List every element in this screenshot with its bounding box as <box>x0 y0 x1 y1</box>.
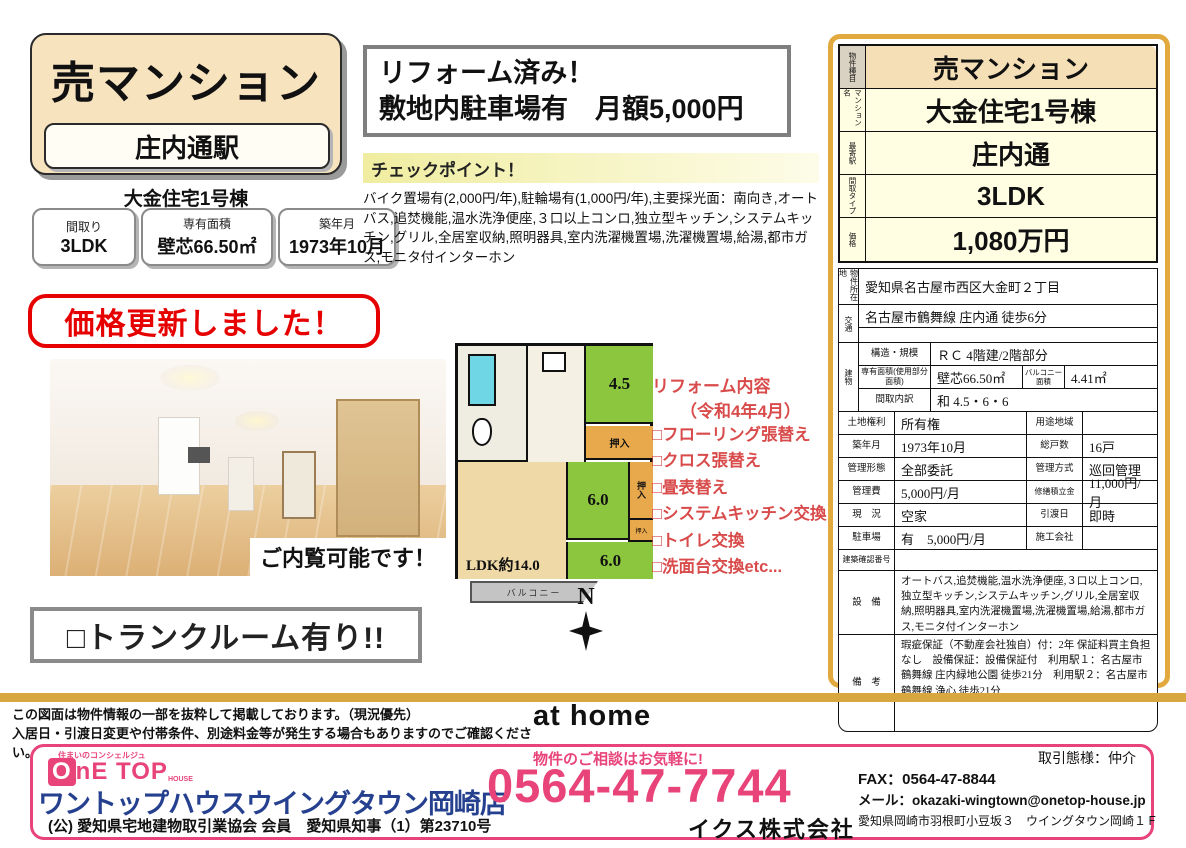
highlight-box: リフォーム済み！ 敷地内駐車場有 月額5,000円 <box>363 45 791 137</box>
property-type-title: 売マンション <box>32 47 340 111</box>
value-balcony-area: 4.41㎡ <box>1065 366 1157 388</box>
property-type-box: 売マンション 庄内通駅 <box>30 33 342 175</box>
label-repair-fund: 修繕積立金 <box>1027 481 1083 503</box>
value-management-form: 全部委託 <box>895 458 1027 480</box>
ldk-label: LDK約14.0 <box>466 554 540 575</box>
label-building: 建物 <box>839 343 859 411</box>
agency-license: (公) 愛知県宅地建物取引業協会 会員 愛知県知事（1）第23710号 <box>48 815 491 836</box>
label-handover: 引渡日 <box>1027 504 1083 526</box>
label-management-method: 管理方式 <box>1027 458 1083 480</box>
floorplan-room-4-5: 4.5 <box>586 346 653 424</box>
value-constructor <box>1083 527 1157 549</box>
room-6b-label: 6.0 <box>600 551 621 571</box>
flyer-page: 売マンション 庄内通駅 大金住宅1号棟 間取り 3LDK 専有面積 壁芯66.5… <box>0 0 1186 848</box>
photo-ceiling-light <box>160 365 220 391</box>
building-name: 大金住宅1号棟 <box>30 184 342 211</box>
summary-row-name: マンション名 大金住宅1号棟 <box>840 89 1156 132</box>
value-exclusive-area: 壁芯66.50㎡ <box>931 366 1023 388</box>
reform-list: リフォーム内容 （令和4年4月） □フローリング張替え □クロス張替え □畳表替… <box>652 372 832 580</box>
value-total-units: 16戸 <box>1083 435 1157 457</box>
photo-caption: ご内覧可能です！ <box>250 538 446 576</box>
summary-label: 価格 <box>840 218 866 261</box>
photo-ceiling-light <box>235 411 279 431</box>
floorplan-ldk: LDK約14.0 <box>458 462 566 579</box>
row-transport: 交通 名古屋市鶴舞線 庄内通 徒歩6分 <box>839 305 1157 343</box>
label-management-form: 管理形態 <box>839 458 895 480</box>
value-layout-detail: 和 4.5・6・6 <box>931 389 1157 411</box>
room-4-5-label: 4.5 <box>609 374 630 394</box>
phone-number: 0564-47-7744 <box>487 758 792 813</box>
summary-row-layout: 間取タイプ 3LDK <box>840 175 1156 218</box>
summary-row-price: 価格 1,080万円 <box>840 218 1156 261</box>
badge-layout-label: 間取り <box>66 218 102 235</box>
value-parking: 有 5,000円/月 <box>895 527 1027 549</box>
value-status: 空家 <box>895 504 1027 526</box>
room-6a-label: 6.0 <box>587 490 608 510</box>
compass-north-label: N <box>558 584 614 611</box>
reform-item: □洗面台交換etc... <box>652 554 832 580</box>
photo-shoji-door <box>282 451 316 519</box>
disclaimer-line1: この図面は物件情報の一部を抜粋して掲載しております。（現況優先） <box>12 706 552 725</box>
label-constructor: 施工会社 <box>1027 527 1083 549</box>
email-address: メール：okazaki-wingtown@onetop-house.jp <box>858 789 1146 809</box>
station-box: 庄内通駅 <box>44 123 330 169</box>
fax-number: FAX：0564-47-8844 <box>858 768 996 789</box>
row-status: 現 況 空家 引渡日 即時 <box>839 504 1157 527</box>
highlight-line1: リフォーム済み！ <box>379 55 775 91</box>
label-remarks: 備 考 <box>839 635 895 731</box>
photo-hall-door <box>228 457 254 511</box>
label-zoning: 用途地域 <box>1027 412 1083 434</box>
value-confirmation <box>895 550 1157 570</box>
summary-value: 売マンション <box>866 46 1156 88</box>
value-remarks: 瑕疵保証（不動産会社独自）付：2年 保証料買主負担なし 設備保証：設備保証付 利… <box>895 635 1157 702</box>
row-built: 築年月 1973年10月 総戸数 16戸 <box>839 435 1157 458</box>
label-transport: 交通 <box>839 305 859 342</box>
summary-label: 最寄駅 <box>840 132 866 174</box>
onetop-logo-rest: nE TOP <box>76 758 168 785</box>
summary-label: 物件種目 <box>840 46 866 88</box>
reform-title: リフォーム内容 <box>652 372 832 397</box>
label-built: 築年月 <box>839 435 895 457</box>
floor-plan: 4.5 押入 LDK約14.0 6.0 押入 押入 6.0 <box>455 343 653 579</box>
row-land-right: 土地権利 所有権 用途地域 <box>839 412 1157 435</box>
row-remarks: 備 考 瑕疵保証（不動産会社独自）付：2年 保証料買主負担なし 設備保証：設備保… <box>839 635 1157 731</box>
floorplan-room-6a: 6.0 <box>566 462 628 540</box>
interior-photo: ご内覧可能です！ <box>50 359 446 576</box>
row-location: 物件所在地 愛知県名古屋市西区大金町２丁目 <box>839 269 1157 305</box>
floorplan-bathtub <box>468 354 496 406</box>
details-table: 物件所在地 愛知県名古屋市西区大金町２丁目 交通 名古屋市鶴舞線 庄内通 徒歩6… <box>838 268 1158 732</box>
badge-area-value: 壁芯66.50㎡ <box>157 233 256 259</box>
trunk-room-banner: □トランクルーム有り!! <box>30 607 422 663</box>
deal-type: 取引態様：仲介 <box>1038 748 1136 768</box>
agency-address: 愛知県岡崎市羽根町小豆坂３ ウイングタウン岡崎１Ｆ <box>858 812 1158 829</box>
row-parking: 駐車場 有 5,000円/月 施工会社 <box>839 527 1157 550</box>
checkpoint-header: チェックポイント！ <box>363 153 819 183</box>
value-built: 1973年10月 <box>895 435 1027 457</box>
summary-row-station: 最寄駅 庄内通 <box>840 132 1156 175</box>
value-zoning <box>1083 412 1157 434</box>
label-management-fee: 管理費 <box>839 481 895 503</box>
reform-item: □トイレ交換 <box>652 528 832 554</box>
value-equipment: オートバス,追焚機能,温水洗浄便座,３口以上コンロ,独立型キッチン,システムキッ… <box>895 571 1157 638</box>
floorplan-room-6b: 6.0 <box>566 542 653 579</box>
summary-table: 物件種目 売マンション マンション名 大金住宅1号棟 最寄駅 庄内通 間取タイプ… <box>838 44 1158 263</box>
reform-item: □システムキッチン交換 <box>652 501 832 527</box>
summary-row-type: 物件種目 売マンション <box>840 46 1156 89</box>
badge-layout-value: 3LDK <box>60 236 107 257</box>
closet-3-label: 押入 <box>635 526 647 535</box>
value-structure: ＲＣ 4階建/2階部分 <box>931 343 1157 365</box>
compass-star-icon <box>569 611 603 651</box>
label-exclusive-area: 専有面積(使用部分面積) <box>859 366 931 388</box>
label-layout-detail: 間取内訳 <box>859 389 931 411</box>
summary-value: 3LDK <box>866 175 1156 217</box>
row-equipment: 設 備 オートバス,追焚機能,温水洗浄便座,３口以上コンロ,独立型キッチン,シス… <box>839 571 1157 635</box>
label-land-right: 土地権利 <box>839 412 895 434</box>
summary-label: マンション名 <box>840 89 866 131</box>
label-structure: 構造・規模 <box>859 343 931 365</box>
label-location: 物件所在地 <box>839 269 859 304</box>
value-land-right: 所有権 <box>895 412 1027 434</box>
value-transport-1: 名古屋市鶴舞線 庄内通 徒歩6分 <box>859 305 1157 328</box>
reform-item: □クロス張替え <box>652 448 832 474</box>
row-building: 建物 構造・規模 ＲＣ 4階建/2階部分 専有面積(使用部分面積) 壁芯66.5… <box>839 343 1157 412</box>
badge-built-label: 築年月 <box>319 215 355 232</box>
value-management-fee: 5,000円/月 <box>895 481 1027 503</box>
checkpoint-body: バイク置場有(2,000円/年),駐輪場有(1,000円/年),主要採光面：南向… <box>363 189 823 267</box>
value-location: 愛知県名古屋市西区大金町２丁目 <box>859 269 1157 304</box>
floorplan-closet-3: 押入 <box>628 520 653 542</box>
value-repair-fund: 11,000円/月 <box>1083 481 1157 503</box>
corporation-name: イクス株式会社 <box>688 812 855 844</box>
summary-value: 1,080万円 <box>866 218 1156 261</box>
label-confirmation: 建築確認番号 <box>839 550 895 570</box>
label-parking: 駐車場 <box>839 527 895 549</box>
reform-subtitle: （令和4年4月） <box>680 397 832 422</box>
label-balcony-area: バルコニー面積 <box>1023 366 1065 388</box>
value-handover: 即時 <box>1083 504 1157 526</box>
row-management-fee: 管理費 5,000円/月 修繕積立金 11,000円/月 <box>839 481 1157 504</box>
badge-area: 専有面積 壁芯66.50㎡ <box>141 208 273 266</box>
badge-layout: 間取り 3LDK <box>32 208 136 266</box>
closet-1-label: 押入 <box>610 435 630 450</box>
summary-label: 間取タイプ <box>840 175 866 217</box>
photo-sliding-door <box>336 399 420 537</box>
closet-2-label: 押入 <box>635 481 648 499</box>
summary-value: 庄内通 <box>866 132 1156 174</box>
reform-item: □フローリング張替え <box>652 422 832 448</box>
badge-area-label: 専有面積 <box>183 215 231 232</box>
floorplan-sink <box>542 352 566 372</box>
price-update-banner: 価格更新しました！ <box>28 294 380 348</box>
label-equipment: 設 備 <box>839 571 895 634</box>
value-transport-2 <box>859 328 1157 342</box>
photo-range-hood <box>188 447 210 463</box>
floorplan-closet-1: 押入 <box>586 426 653 460</box>
label-status: 現 況 <box>839 504 895 526</box>
athome-logo: at home <box>533 700 651 733</box>
summary-value: 大金住宅1号棟 <box>866 89 1156 131</box>
row-confirmation: 建築確認番号 <box>839 550 1157 571</box>
reform-item: □畳表替え <box>652 475 832 501</box>
floorplan-closet-2: 押入 <box>628 462 653 520</box>
floorplan-toilet <box>472 418 492 446</box>
label-total-units: 総戸数 <box>1027 435 1083 457</box>
compass: N <box>558 584 614 651</box>
highlight-line2: 敷地内駐車場有 月額5,000円 <box>379 91 775 127</box>
